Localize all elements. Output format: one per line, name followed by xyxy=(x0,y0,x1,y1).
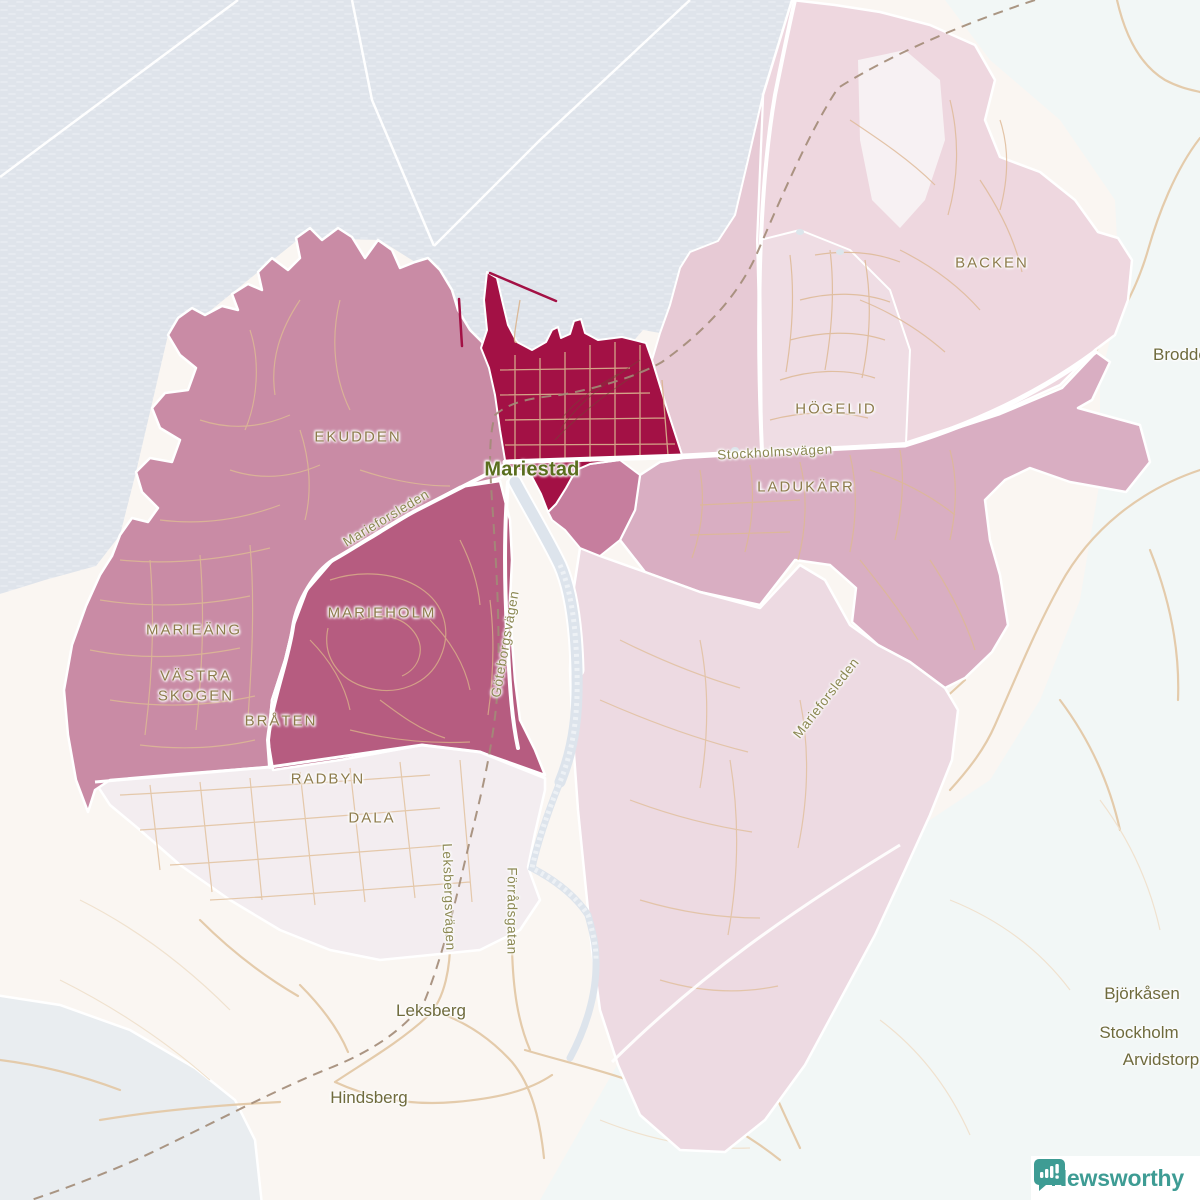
pond xyxy=(796,229,804,235)
map-canvas[interactable]: MariestadEKUDDENMARIEÄNGVÄSTRA SKOGENBRÅ… xyxy=(0,0,1200,1200)
newsworthy-logo[interactable]: Newsworthy xyxy=(1031,1156,1200,1200)
pond xyxy=(731,447,739,453)
choropleth-map xyxy=(0,0,1200,1200)
newsworthy-logo-text: Newsworthy xyxy=(1051,1165,1184,1192)
pond xyxy=(836,249,844,255)
